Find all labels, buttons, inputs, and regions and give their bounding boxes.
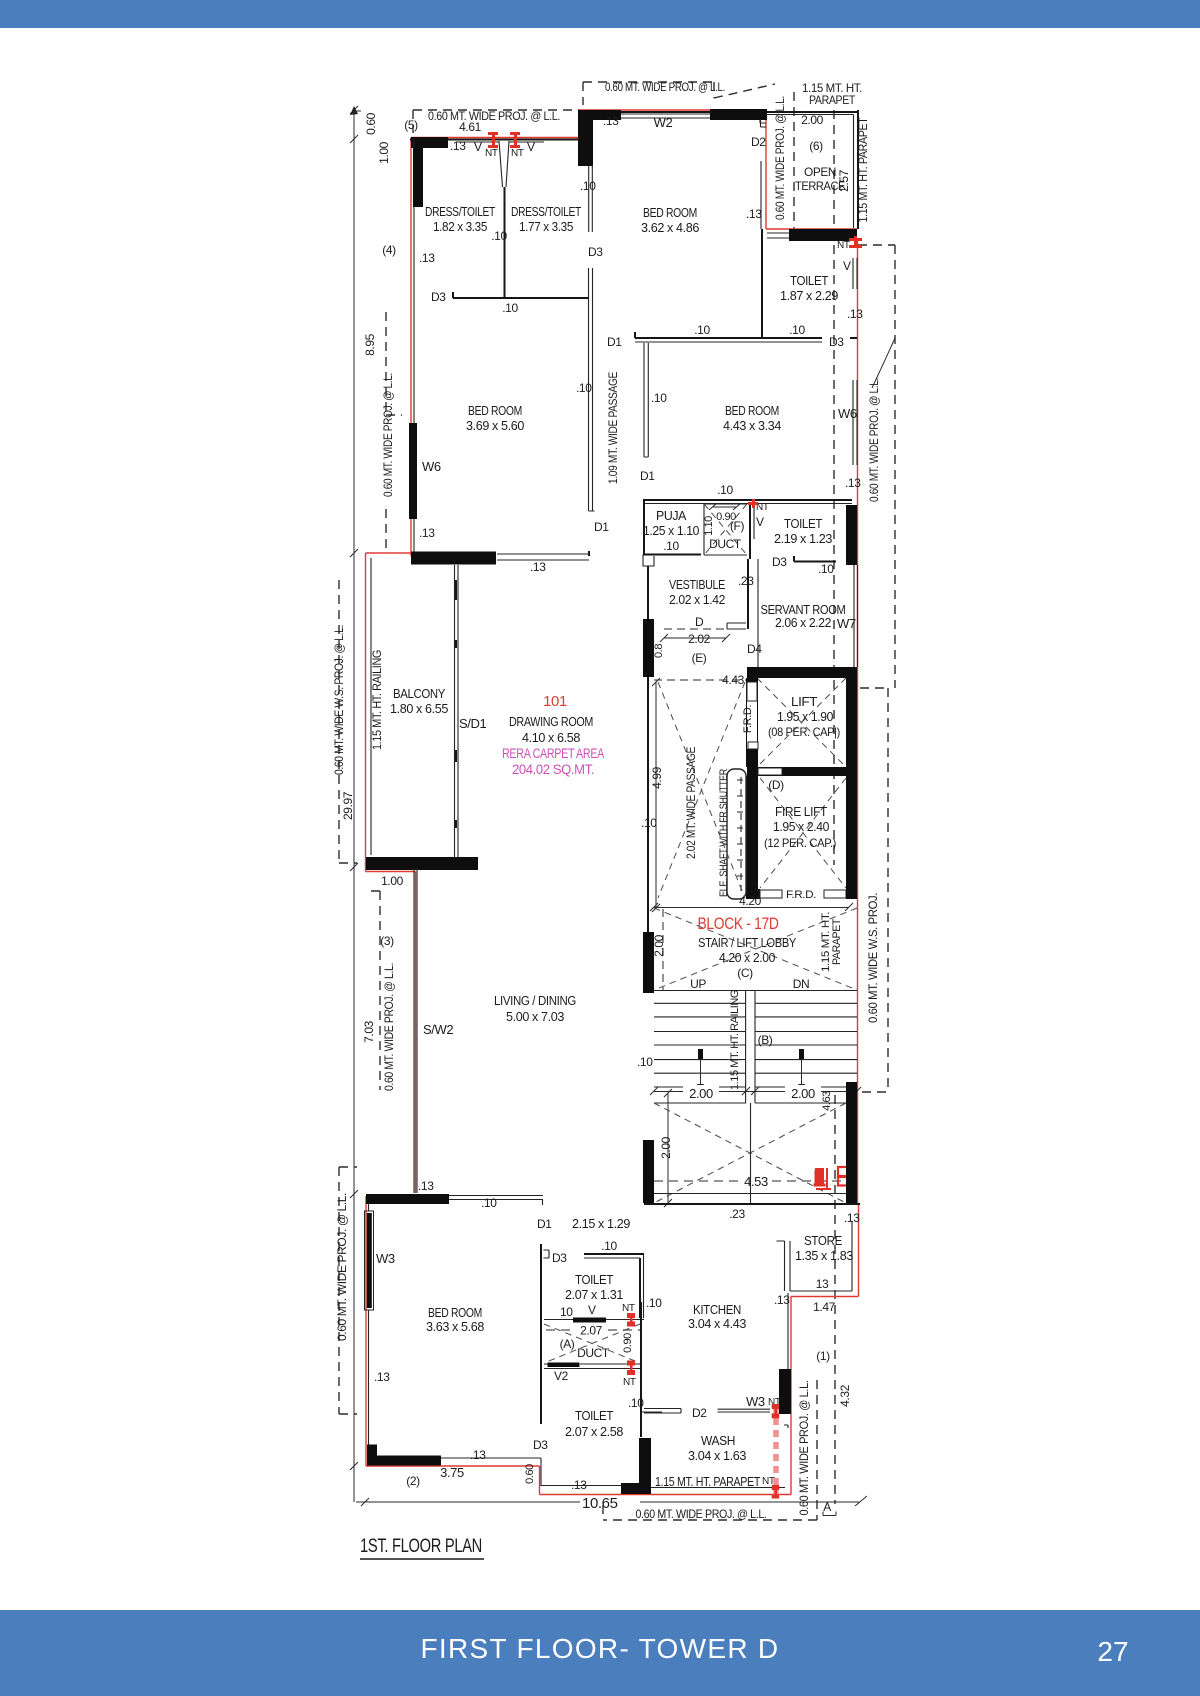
svg-text:3.75: 3.75 [440,1465,464,1480]
svg-text:BED ROOM: BED ROOM [468,403,522,418]
svg-text:V: V [527,140,535,154]
svg-text:.10: .10 [580,179,596,193]
svg-text:4.43: 4.43 [722,673,744,687]
svg-text:.10: .10 [601,1239,617,1253]
svg-text:0.60: 0.60 [524,1464,536,1484]
svg-text:2.00: 2.00 [689,1086,713,1101]
svg-text:1.15 MT. HT. RAILING: 1.15 MT. HT. RAILING [729,990,741,1090]
svg-text:TOILET: TOILET [790,273,828,288]
svg-text:V: V [843,259,851,273]
svg-text:.10: .10 [789,323,805,337]
svg-text:0.60 MT. WIDE PROJ. @ L.L.: 0.60 MT. WIDE PROJ. @ L.L. [381,373,395,497]
svg-text:2.07 x 2.58: 2.07 x 2.58 [565,1424,623,1439]
svg-text:DUCT: DUCT [709,537,742,551]
svg-text:.10: .10 [646,1296,662,1310]
svg-text:BED ROOM: BED ROOM [643,205,697,220]
svg-text:NT: NT [485,148,498,159]
svg-text:8.95: 8.95 [363,333,377,355]
svg-text:1.15 MT. HT. PARAPET: 1.15 MT. HT. PARAPET [655,1474,760,1489]
svg-text:0.60 MT. WIDE W.S. PROJ.: 0.60 MT. WIDE W.S. PROJ. [866,893,880,1023]
svg-text:.13: .13 [845,476,861,490]
svg-text:V: V [588,1303,596,1317]
svg-text:2.19 x 1.23: 2.19 x 1.23 [774,531,832,546]
svg-text:.10: .10 [502,301,518,315]
svg-text:LIVING / DINING: LIVING / DINING [494,993,576,1008]
svg-text:(3): (3) [380,934,394,948]
svg-text:DRAWING ROOM: DRAWING ROOM [509,714,593,729]
svg-text:13: 13 [816,1277,829,1291]
svg-text:W6: W6 [838,406,857,421]
svg-text:1.25 x 1.10: 1.25 x 1.10 [643,523,699,538]
svg-text:2.06 x 2.22: 2.06 x 2.22 [775,615,831,630]
svg-text:4.32: 4.32 [838,1384,852,1406]
svg-text:3.04 x 4.43: 3.04 x 4.43 [688,1316,746,1331]
svg-text:.13: .13 [418,1179,434,1193]
svg-text:FIRE LIFT: FIRE LIFT [775,804,827,819]
svg-text:NT: NT [622,1303,635,1314]
svg-text:.10: .10 [491,229,507,243]
svg-text:.13: .13 [419,526,435,540]
svg-text:D1: D1 [607,335,622,349]
svg-text:D2: D2 [692,1406,707,1420]
svg-text:BALCONY: BALCONY [393,686,446,701]
svg-text:2.02 MT. WIDE PASSAGE: 2.02 MT. WIDE PASSAGE [684,747,698,859]
svg-text:D4: D4 [747,642,762,656]
svg-text:29.97: 29.97 [341,791,355,820]
svg-text:NT: NT [623,1377,636,1388]
svg-text:D1: D1 [594,520,609,534]
svg-text:.10: .10 [694,323,710,337]
svg-text:1.77 x 3.35: 1.77 x 3.35 [519,219,573,234]
svg-text:3.62 x 4.86: 3.62 x 4.86 [641,220,699,235]
svg-text:.13: .13 [746,207,762,221]
svg-text:D2: D2 [751,135,766,149]
svg-text:.13: .13 [530,560,546,574]
svg-text:UP: UP [690,977,706,991]
svg-text:BLOCK - 17D: BLOCK - 17D [698,914,779,933]
svg-text:F.R.D.: F.R.D. [742,705,754,734]
svg-text:2.00: 2.00 [801,113,823,127]
svg-text:DRESS/TOILET: DRESS/TOILET [425,204,495,219]
svg-text:OPEN: OPEN [804,165,836,179]
svg-text:4.20 x 2.00: 4.20 x 2.00 [719,950,775,965]
svg-text:.13: .13 [470,1448,486,1462]
svg-text:0.60 MT. WIDE PROJ. @ L.L.: 0.60 MT. WIDE PROJ. @ L.L. [382,963,396,1091]
svg-text:2.00: 2.00 [652,934,666,956]
svg-text:204.02 SQ.MT.: 204.02 SQ.MT. [512,762,594,777]
svg-text:RERA CARPET AREA: RERA CARPET AREA [502,746,604,761]
svg-text:4.99: 4.99 [650,766,664,788]
svg-text:(12 PER. CAP.): (12 PER. CAP.) [764,836,836,850]
svg-text:.10: .10 [651,391,667,405]
svg-text:NT: NT [837,240,850,251]
svg-text:ELE. SHAFT WITH FR.SHUTTER: ELE. SHAFT WITH FR.SHUTTER [718,769,730,897]
svg-text:1.00: 1.00 [377,141,391,163]
svg-text:DUCT: DUCT [577,1346,610,1360]
svg-text:S/W2: S/W2 [423,1022,453,1037]
svg-text:1.82 x 3.35: 1.82 x 3.35 [433,219,487,234]
svg-text:W7: W7 [837,616,856,631]
svg-text:.10: .10 [641,816,657,830]
svg-text:BED ROOM: BED ROOM [428,1305,482,1320]
svg-text:101: 101 [543,693,567,710]
svg-text:.23: .23 [729,1207,745,1221]
svg-text:.13: .13 [419,251,435,265]
svg-text:.10: .10 [576,381,592,395]
svg-text:2.07 x 1.31: 2.07 x 1.31 [565,1287,623,1302]
svg-text:D3: D3 [588,245,603,259]
svg-text:STORE: STORE [804,1233,843,1248]
svg-text:4.10 x 6.58: 4.10 x 6.58 [522,730,580,745]
svg-text:W6: W6 [422,459,441,474]
svg-text:2.02: 2.02 [688,632,710,646]
svg-text:10.65: 10.65 [582,1495,618,1512]
svg-text:4.43 x 3.34: 4.43 x 3.34 [723,418,781,433]
svg-text:D1: D1 [537,1217,552,1231]
svg-text:3.69 x 5.60: 3.69 x 5.60 [466,418,524,433]
svg-text:TOILET: TOILET [575,1408,613,1423]
svg-text:D: D [695,615,704,629]
svg-text:W3: W3 [746,1394,765,1409]
svg-text:1.80 x 6.55: 1.80 x 6.55 [390,701,448,716]
svg-text:(B): (B) [758,1033,773,1047]
svg-text:5.00 x 7.03: 5.00 x 7.03 [506,1009,564,1024]
svg-text:(1): (1) [816,1349,830,1363]
svg-text:2.07: 2.07 [580,1324,602,1338]
svg-text:1.15 MT. HT. RAILING: 1.15 MT. HT. RAILING [370,650,384,750]
svg-text:0.8: 0.8 [653,644,665,658]
svg-text:7.03: 7.03 [362,1020,376,1042]
svg-text:W3: W3 [376,1251,395,1266]
svg-text:PARAPET: PARAPET [831,918,843,965]
svg-text:.13: .13 [603,114,619,128]
svg-text:DN: DN [793,977,810,991]
svg-text:(E): (E) [692,651,707,665]
svg-text:F.R.D.: F.R.D. [786,889,816,901]
svg-text:1.95 x 1.90: 1.95 x 1.90 [777,709,833,724]
svg-text:0.60 MT. WIDE PROJ. @ L.L.: 0.60 MT. WIDE PROJ. @ L.L. [867,378,881,502]
svg-text:D3: D3 [829,335,844,349]
svg-text:10: 10 [560,1305,573,1319]
svg-text:V2: V2 [554,1369,569,1383]
svg-text:0.60 MT. WIDE PROJ. @ L.L.: 0.60 MT. WIDE PROJ. @ L.L. [335,1193,349,1341]
svg-text:.10: .10 [818,562,834,576]
svg-text:1.95 x 2.40: 1.95 x 2.40 [773,819,829,834]
svg-text:1.47: 1.47 [813,1300,835,1314]
svg-text:V: V [756,515,764,529]
svg-text:0.60 MT. WIDE PROJ. @ L.L.: 0.60 MT. WIDE PROJ. @ L.L. [797,1380,811,1515]
svg-text:4.53: 4.53 [744,1174,768,1189]
svg-text:(F): (F) [730,519,745,533]
svg-text:0.60 MT. WIDE PROJ. @ L.L.: 0.60 MT. WIDE PROJ. @ L.L. [605,80,725,94]
svg-text:3.63 x 5.68: 3.63 x 5.68 [426,1319,484,1334]
svg-text:(5): (5) [404,118,418,132]
svg-text:TOILET: TOILET [784,516,822,531]
svg-text:(4): (4) [382,243,396,257]
svg-text:1ST. FLOOR PLAN: 1ST. FLOOR PLAN [360,1536,482,1557]
svg-text:D1: D1 [640,469,655,483]
svg-text:BED ROOM: BED ROOM [725,403,779,418]
svg-text:4.20: 4.20 [739,894,761,908]
svg-text:D3: D3 [431,290,446,304]
svg-text:(A): (A) [560,1337,575,1351]
svg-text:STAIR / LIFT LOBBY: STAIR / LIFT LOBBY [698,935,797,950]
svg-text:.10: .10 [717,483,733,497]
svg-text:NT: NT [511,148,524,159]
svg-text:4.63: 4.63 [821,1091,833,1111]
svg-text:A: A [823,1500,831,1514]
svg-text:DRESS/TOILET: DRESS/TOILET [511,204,581,219]
svg-text:(08 PER. CAP|): (08 PER. CAP|) [768,725,840,739]
svg-text:0.60: 0.60 [364,112,378,134]
svg-text:D3: D3 [772,555,787,569]
svg-text:D3: D3 [533,1438,548,1452]
svg-text:0.60 MT. WIDE PROJ. @ L.L.: 0.60 MT. WIDE PROJ. @ L.L. [428,109,560,123]
svg-text:.10: .10 [663,539,679,553]
svg-text:LIFT: LIFT [791,694,817,709]
svg-text:VESTIBULE: VESTIBULE [669,577,726,592]
svg-text:.23: .23 [738,574,754,588]
svg-text:TOILET: TOILET [575,1272,613,1287]
svg-text:W2: W2 [654,115,673,130]
svg-text:2.15 x 1.29: 2.15 x 1.29 [572,1216,630,1231]
svg-text:.13: .13 [450,139,466,153]
svg-text:1.00: 1.00 [381,874,403,888]
svg-text:2.57: 2.57 [837,169,851,191]
svg-text:(2): (2) [406,1474,420,1488]
svg-text:(D): (D) [768,778,784,792]
svg-text:(6): (6) [809,139,823,153]
svg-text:D3: D3 [552,1251,567,1265]
svg-text:KITCHEN: KITCHEN [693,1302,741,1317]
svg-text:WASH: WASH [701,1433,735,1448]
svg-text:3.04 x 1.63: 3.04 x 1.63 [688,1448,746,1463]
svg-text:2.02 x 1.42: 2.02 x 1.42 [669,592,725,607]
svg-text:2.00: 2.00 [791,1086,815,1101]
svg-text:1.35 x 1.83: 1.35 x 1.83 [795,1248,853,1263]
svg-text:1.10: 1.10 [703,516,715,536]
svg-text:4.61: 4.61 [459,120,481,134]
svg-text:PARAPET: PARAPET [809,93,856,107]
svg-text:0.90: 0.90 [622,1333,634,1353]
svg-text:1.87 x 2.29: 1.87 x 2.29 [780,288,838,303]
svg-text:.13: .13 [374,1370,390,1384]
svg-text:.13: .13 [847,307,863,321]
svg-text:.10: .10 [637,1055,653,1069]
svg-text:PUJA: PUJA [656,508,687,523]
svg-text:2.00: 2.00 [659,1136,673,1158]
svg-text:0.60 MT. WIDE W.S. PROJ. @ L.L: 0.60 MT. WIDE W.S. PROJ. @ L.L. [332,625,346,775]
svg-text:S/D1: S/D1 [459,716,486,731]
svg-text:.10: .10 [481,1196,497,1210]
svg-text:V: V [474,140,482,154]
svg-text:0.60 MT. WIDE PROJ. @ L.L.: 0.60 MT. WIDE PROJ. @ L.L. [636,1507,767,1521]
svg-text:1.09 MT. WIDE PASSAGE: 1.09 MT. WIDE PASSAGE [606,372,620,484]
svg-text:(C): (C) [737,966,753,980]
